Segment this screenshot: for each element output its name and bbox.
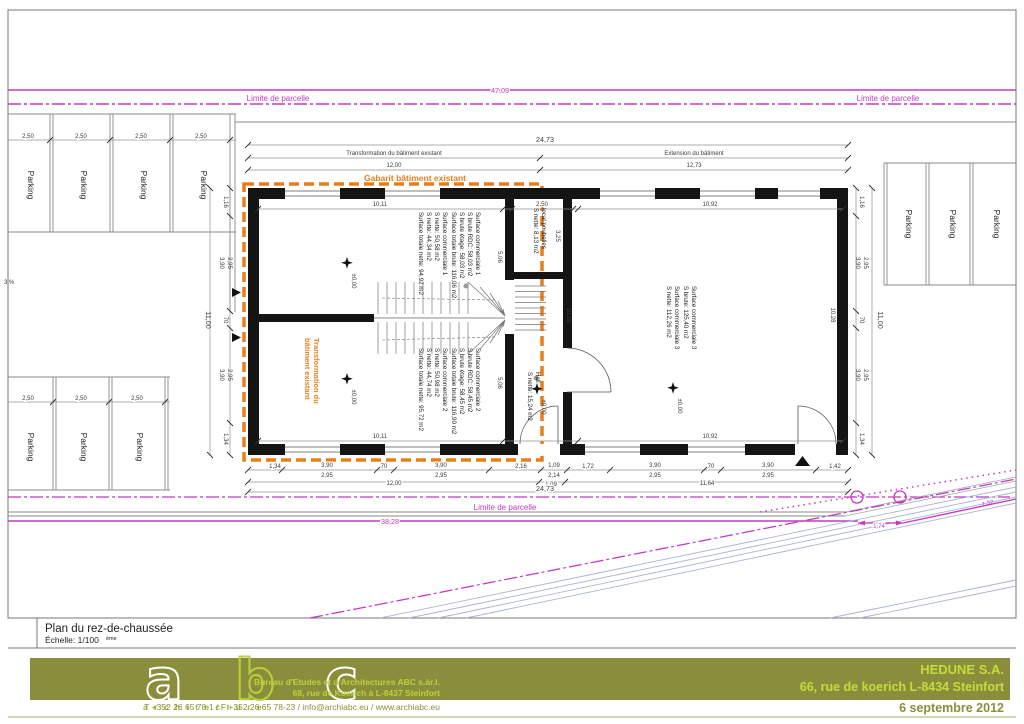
- dim-label: 2,95: [226, 257, 232, 269]
- page-title: Plan du rez-de-chaussée: [45, 623, 173, 635]
- svg-text:S brute étage: 58,45 m2: S brute étage: 58,45 m2: [458, 348, 465, 415]
- dim-label: 11,00: [876, 311, 885, 328]
- parking-stall-label: Parking: [904, 210, 914, 239]
- dim-label: 1,34: [269, 464, 281, 470]
- parking-stall-label: Parking: [948, 210, 958, 239]
- dim-label: 12,00: [386, 163, 402, 169]
- limite-label-bottom: Limite de parcelle: [474, 503, 537, 512]
- svg-text:Hall: Hall: [534, 372, 541, 383]
- dim-label: 3,90: [649, 463, 661, 469]
- dim-label: 10,28: [829, 307, 835, 323]
- dim-label: 3,90: [321, 463, 333, 469]
- drawing-sheet: 47,09 Limite de parcelle Limite de parce…: [0, 0, 1024, 724]
- dim-label: 5,06: [496, 377, 502, 389]
- dim-label: 11,00: [204, 311, 213, 328]
- svg-text:S nette: 8,13 m2: S nette: 8,13 m2: [532, 208, 539, 254]
- stall-dim: 2,50: [135, 134, 147, 140]
- dim-label: 2,95: [862, 257, 868, 269]
- svg-text:S nette: 44,34 m2: S nette: 44,34 m2: [425, 212, 432, 261]
- bureau-line1: Bureau d'Etudes et d'Architectures ABC s…: [254, 677, 440, 687]
- svg-text:S nette: 50,58 m2: S nette: 50,58 m2: [433, 212, 440, 261]
- parking-stall-label: Parking: [26, 433, 36, 462]
- room-sc1-text: Surface commerciale 1 S brute RDC: 58,03…: [417, 212, 481, 299]
- dim-label: 1,09: [548, 463, 560, 469]
- svg-text:Surface commerciale 2: Surface commerciale 2: [441, 348, 448, 412]
- dim-label: 2,95: [321, 473, 333, 479]
- room-sc2-text: Surface commerciale 2 S brute RDC: 58,45…: [417, 348, 481, 435]
- svg-text:Surface totale brute: 116,06 m: Surface totale brute: 116,06 m2: [450, 212, 457, 299]
- dim-label: 12,73: [686, 163, 702, 169]
- dim-label: 2,95: [435, 473, 447, 479]
- building-top-chains: 24,73 Transformation du bâtiment existan…: [245, 135, 851, 183]
- dim-label: 2,95: [649, 473, 661, 479]
- dim-label: 2,95: [762, 473, 774, 479]
- scale-label: Échelle: 1/100: [45, 635, 99, 645]
- room-poubelles-text: local poubelles S nette: 8,13 m2: [532, 208, 547, 254]
- dim-label: 2,14: [548, 473, 560, 479]
- parking-stall-label: Parking: [135, 433, 145, 462]
- stall-dim: 2,50: [75, 134, 87, 140]
- dim-label: 10,92: [702, 434, 718, 440]
- svg-text:Surface totale nette: 94,92 m2: Surface totale nette: 94,92 m2: [417, 212, 424, 295]
- stall-dim: 2,50: [75, 396, 87, 402]
- svg-text:Surface commerciale 2: Surface commerciale 2: [474, 348, 481, 412]
- dim-label: 3,90: [218, 369, 224, 381]
- svg-text:±0,00: ±0,00: [540, 400, 546, 416]
- dim-label: 3,90: [435, 463, 447, 469]
- dim-label: 5,06: [496, 251, 502, 263]
- drawing-date: 6 septembre 2012: [899, 701, 1004, 715]
- svg-text:S nette: 44,74 m2: S nette: 44,74 m2: [425, 348, 432, 397]
- floor-plan-svg: 47,09 Limite de parcelle Limite de parce…: [0, 0, 1024, 724]
- svg-text:local poubelles: local poubelles: [540, 208, 547, 249]
- dim-label: 10,11: [373, 434, 388, 440]
- dim-label: 10,11: [373, 202, 388, 208]
- dim-label: 11,64: [700, 481, 715, 487]
- stall-dim: 2,50: [22, 396, 34, 402]
- svg-text:Surface commerciale 3: Surface commerciale 3: [690, 286, 697, 350]
- parking-stall-label: Parking: [26, 171, 36, 200]
- limite-label-left: Limite de parcelle: [247, 94, 310, 103]
- svg-text:S brute étage: 58,03 m2: S brute étage: 58,03 m2: [458, 212, 465, 279]
- parking-stall-label: Parking: [79, 433, 89, 462]
- dim-overall-site: 47,09: [491, 86, 509, 95]
- svg-text:S nette: 112,26 m2: S nette: 112,26 m2: [665, 286, 672, 338]
- dim-label: 10,28: [565, 307, 571, 323]
- svg-text:±0,00: ±0,00: [350, 274, 356, 290]
- contact-line: T +352 26 65 78-1 / F +352 26 65 78-23 /…: [144, 702, 440, 712]
- dim-label: 12,00: [386, 481, 402, 487]
- dim-label: 1,16: [858, 196, 864, 208]
- gabarit-label: Gabarit bâtiment existant: [364, 173, 466, 183]
- dim-label: 70: [708, 464, 715, 470]
- transformation-label: Transformation du bâtiment existant: [303, 338, 321, 404]
- dim-label: 3,25: [554, 230, 560, 242]
- stall-dim: 2,50: [131, 396, 143, 402]
- dim-174: 1,74: [873, 524, 885, 530]
- dim-label: 3,90: [218, 257, 224, 269]
- svg-text:±0,00: ±0,00: [676, 399, 682, 415]
- chain-label-extension: Extension du bâtiment: [664, 151, 724, 157]
- dim-label: 2,95: [226, 369, 232, 381]
- dim-label: 10,92: [702, 202, 718, 208]
- svg-text:±0,00: ±0,00: [350, 390, 356, 406]
- client-address: 66, rue de koerich L-8434 Steinfort: [800, 680, 1005, 694]
- dim-label: 70: [222, 317, 228, 324]
- dim-label: 1,16: [222, 196, 228, 208]
- svg-text:Surface commerciale 3: Surface commerciale 3: [673, 286, 680, 350]
- dim-label: 1,72: [582, 464, 594, 470]
- svg-text:Transformation du: Transformation du: [312, 338, 321, 404]
- svg-text:bâtiment existant: bâtiment existant: [303, 338, 312, 400]
- svg-text:S nette: 15,24 m2: S nette: 15,24 m2: [526, 372, 533, 421]
- svg-text:S nette: 50,98 m2: S nette: 50,98 m2: [433, 348, 440, 397]
- right-chain: 1,16 3,90 2,95 70 3,90 2,95 1,34 11,00: [853, 185, 885, 458]
- dim-label: 1,42: [829, 464, 841, 470]
- entrance-arrow: [795, 456, 810, 466]
- dim-label: 70: [381, 464, 388, 470]
- scale-sup: ème: [106, 636, 117, 642]
- dim-label: 70: [858, 317, 864, 324]
- parking-row-bottom-left: 2,50 2,50 2,50 Parking Parking Parking: [8, 377, 170, 490]
- svg-text:Surface totale brute: 116,90 m: Surface totale brute: 116,90 m2: [450, 348, 457, 435]
- stall-dim: 2,50: [195, 134, 207, 140]
- client-name: HEDUNE S.A.: [920, 662, 1004, 677]
- sheet-frame: [8, 10, 1016, 648]
- limite-label-right: Limite de parcelle: [857, 94, 920, 103]
- dim-overall-building: 24,73: [536, 135, 554, 144]
- parcel-limit-top: 47,09 Limite de parcelle Limite de parce…: [8, 86, 1016, 104]
- dim-label: 1,34: [858, 433, 864, 445]
- parking-stall-label: Parking: [79, 171, 89, 200]
- dim-label: 3,90: [854, 369, 860, 381]
- chain-label-transformation: Transformation du bâtiment existant: [346, 151, 442, 157]
- interior-dims: 10,11 2,50 10,92 10,11 10,92 10,28 10,28…: [255, 202, 846, 444]
- dim-road: 38,28: [381, 517, 399, 526]
- svg-text:Surface commerciale 1: Surface commerciale 1: [474, 212, 481, 276]
- dim-label: 1,34: [222, 433, 228, 445]
- svg-text:S brute: 125,40 m2: S brute: 125,40 m2: [682, 286, 689, 339]
- dim-label: 2,95: [862, 369, 868, 381]
- dim-label: 24,73: [536, 484, 554, 493]
- building-walls: [248, 188, 848, 455]
- dim-label: 2,16: [515, 464, 527, 470]
- svg-text:Surface totale nette: 95,72 m2: Surface totale nette: 95,72 m2: [417, 348, 424, 431]
- dim-132: 1,32: [981, 500, 994, 508]
- svg-text:S brute RDC: 58,03 m2: S brute RDC: 58,03 m2: [466, 212, 473, 277]
- room-hall-text: Hall S nette: 15,24 m2: [526, 372, 541, 421]
- stall-dim: 2,50: [22, 134, 34, 140]
- bureau-line2: 68, rue de Koerich à L-8437 Steinfort: [293, 688, 441, 698]
- parking-stall-label: Parking: [992, 210, 1002, 239]
- svg-text:Surface commerciale 1: Surface commerciale 1: [441, 212, 448, 276]
- room-sc3-text: Surface commerciale 3 S brute: 125,40 m2…: [665, 286, 697, 350]
- parking-row-right: Parking Parking Parking: [884, 163, 1016, 285]
- slope-label: 3 %: [4, 280, 15, 286]
- dim-label: 3,90: [762, 463, 774, 469]
- dim-label: 3,90: [854, 257, 860, 269]
- footer: a b c a r c h i t e c t u r e Bureau d'E…: [8, 648, 1016, 717]
- parking-stall-label: Parking: [139, 171, 149, 200]
- svg-text:S brute RDC: 58,45 m2: S brute RDC: 58,45 m2: [466, 348, 473, 413]
- building-bottom-chains: 1,34 3,90 2,95 70 3,90 2,95 2,16 1,09 2,…: [245, 463, 851, 495]
- title-block: Plan du rez-de-chaussée Échelle: 1/100 è…: [45, 623, 173, 645]
